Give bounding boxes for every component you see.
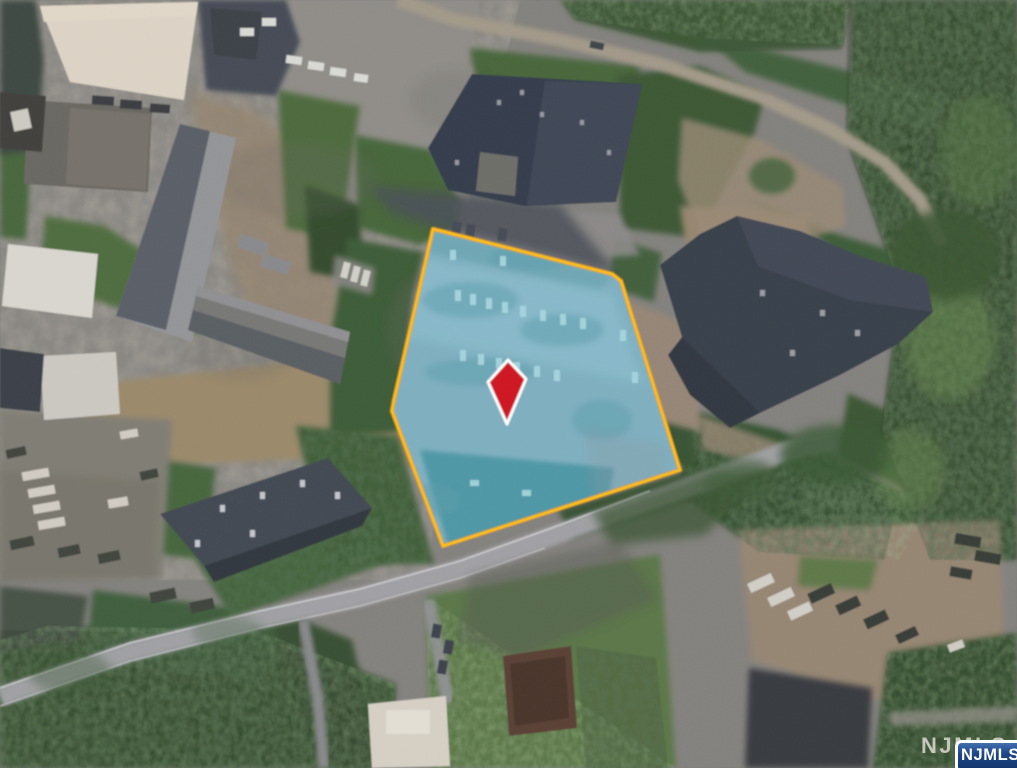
svg-text:NJMLS: NJMLS: [961, 746, 1017, 764]
